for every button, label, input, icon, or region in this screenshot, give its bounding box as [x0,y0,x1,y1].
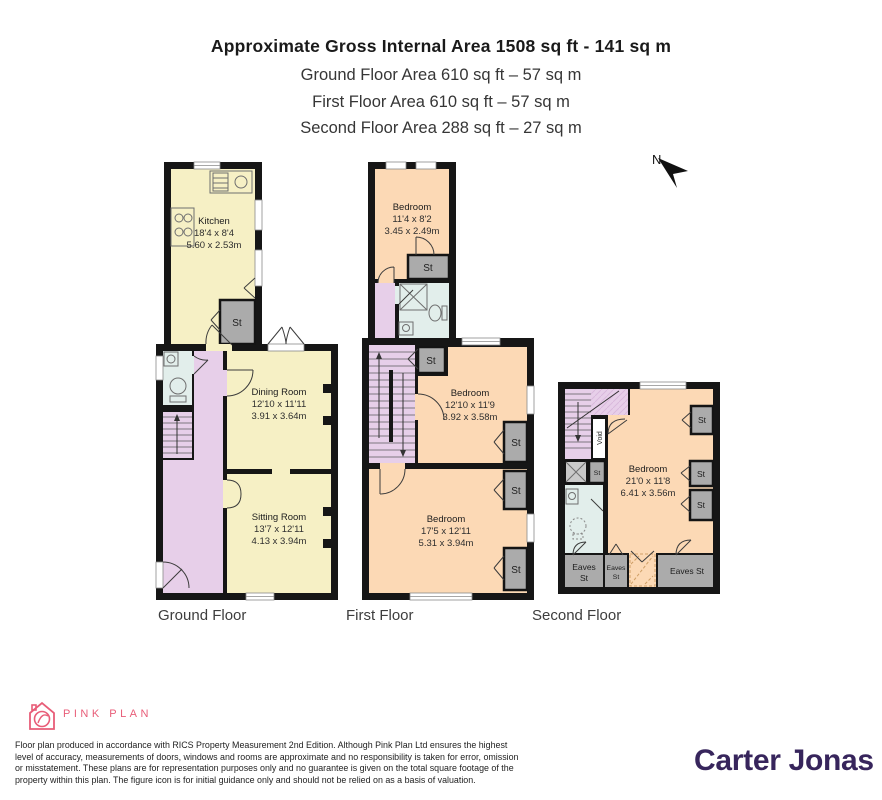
second-floor-plan: Void St St [553,378,733,608]
eaves-left-line1: Eaves [572,562,596,572]
second-windows [640,382,686,389]
disclaimer-line: level of accuracy, measurements of doors… [15,752,535,764]
eaves-mid-line1: Eaves [607,565,626,572]
second-bedroom-imperial: 21'0 x 11'8 [626,476,671,487]
kitchen-imperial: 18'4 x 8'4 [194,228,234,239]
subtitle-second-floor: Second Floor Area 288 sq ft – 27 sq m [0,115,882,142]
carter-jonas-logo: Carter Jonas [694,744,874,778]
first-floor-plan: Bedroom 11'4 x 8'2 3.45 x 2.49m St St Be… [358,158,543,608]
eaves-left-line2: St [580,573,589,583]
sitting-name: Sitting Room [252,512,306,523]
ground-floor-plan: Kitchen 18'4 x 8'4 5.60 x 2.53m St Dinin… [150,158,345,608]
second-st-small: St [589,461,605,483]
bedroom2-metric: 3.92 x 3.58m [443,412,498,423]
bedroom3-name: Bedroom [427,514,466,525]
second-shower [565,461,587,483]
kitchen-metric: 5.60 x 2.53m [187,240,242,251]
bedroom2-name: Bedroom [451,388,490,399]
second-st1-label: St [698,415,707,425]
ground-st-label: St [232,318,242,329]
second-st2-label: St [697,469,706,479]
first-hall-strip [375,283,395,338]
first-st-c: St [511,565,521,576]
second-bedroom-name: Bedroom [629,464,668,475]
second-bedroom-metric: 6.41 x 3.56m [621,488,676,499]
north-arrow: N [642,144,694,192]
floor-label-second: Second Floor [532,607,621,624]
second-st-small-label: St [594,470,601,477]
ground-dining-room [227,351,331,469]
bedroom1-name: Bedroom [393,202,432,213]
kitchen-name: Kitchen [198,216,230,227]
bedroom3-metric: 5.31 x 3.94m [419,538,474,549]
pink-plan-logo-icon [24,698,60,734]
bedroom2-imperial: 12'10 x 11'9 [445,400,495,411]
dining-metric: 3.91 x 3.64m [252,411,307,422]
bedroom1-metric: 3.45 x 2.49m [385,226,440,237]
sitting-imperial: 13'7 x 12'11 [254,524,304,535]
dining-imperial: 12'10 x 11'11 [252,399,307,410]
floor-label-first: First Floor [346,607,414,624]
disclaimer-line: or misstatement. These plans are for rep… [15,763,535,775]
second-st3-label: St [697,500,706,510]
floorplan-page: Approximate Gross Internal Area 1508 sq … [0,0,882,800]
first-st-a: St [511,438,521,449]
ground-stairs [163,412,192,458]
page-title: Approximate Gross Internal Area 1508 sq … [0,36,882,57]
subtitle-first-floor: First Floor Area 610 sq ft – 57 sq m [0,89,882,116]
disclaimer-line: Floor plan produced in accordance with R… [15,740,535,752]
first-stairs [369,345,415,463]
second-dashed-area [629,551,656,587]
dining-name: Dining Room [252,387,307,398]
eaves-mid-line2: St [613,574,620,581]
second-void: Void [592,418,606,459]
second-bathroom [565,485,603,553]
north-arrow-icon [658,158,688,188]
floor-label-ground: Ground Floor [158,607,246,624]
first-st-b: St [511,486,521,497]
sitting-metric: 4.13 x 3.94m [252,536,307,547]
pink-plan-wordmark: PINK PLAN [63,708,152,720]
void-label: Void [597,431,604,445]
bedroom1-imperial: 11'4 x 8'2 [392,214,431,225]
first-st-top: St [423,263,433,274]
first-st-stairs: St [426,356,436,367]
eaves-right-label: Eaves St [670,566,705,576]
subtitle-ground-floor: Ground Floor Area 610 sq ft – 57 sq m [0,62,882,89]
disclaimer-line: property within this plan. The figure ic… [15,775,535,787]
disclaimer: Floor plan produced in accordance with R… [15,740,535,786]
first-bathroom [395,283,449,338]
bedroom3-imperial: 17'5 x 12'11 [421,526,471,537]
area-subtitles: Ground Floor Area 610 sq ft – 57 sq m Fi… [0,62,882,142]
